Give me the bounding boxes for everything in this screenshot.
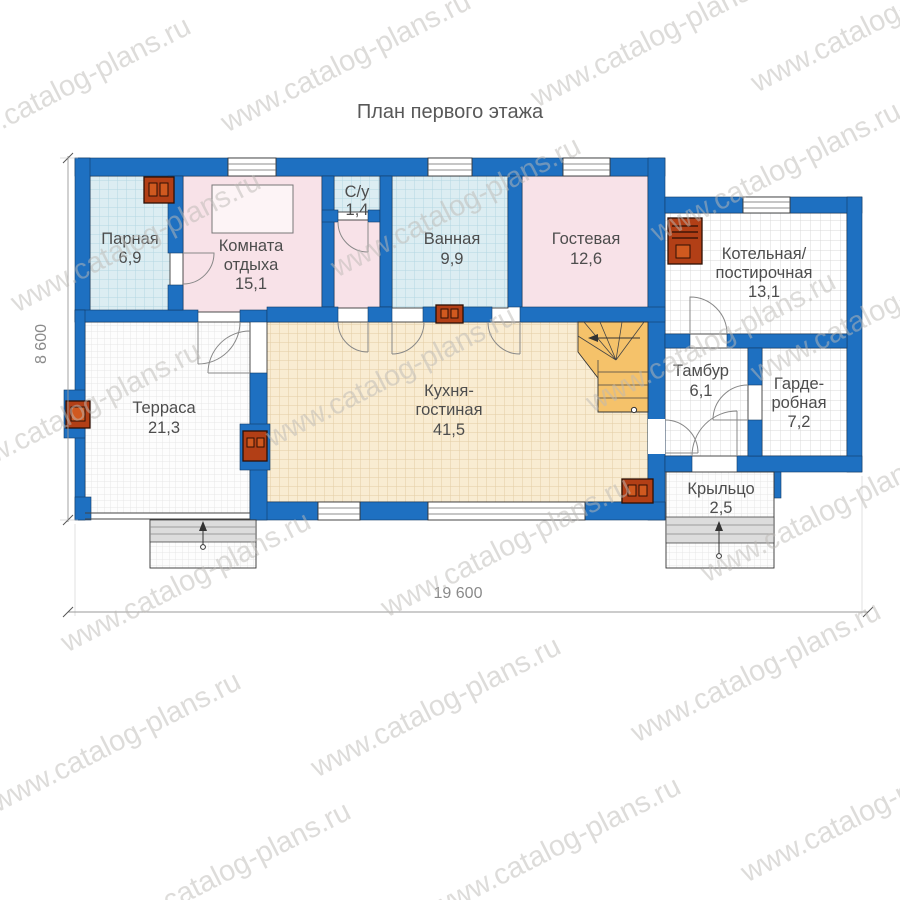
radiator-icon [144,177,174,203]
room-label: Крыльцо [687,480,754,498]
watermark-text: www.catalog-plans.ru [0,10,196,164]
radiator-icon [243,431,267,461]
radiator-icon [436,305,463,323]
watermark-text: www.catalog-plans.ru [625,595,886,749]
page-title: План первого этажа [357,101,544,123]
terrace-open-edge [85,513,250,519]
watermark-text: www.catalog-plans.ru [95,795,356,900]
watermark-text: www.catalog-plans.ru [745,0,900,99]
stairs-start-marker [631,407,636,412]
watermark-text: www.catalog-plans.ru [425,770,686,900]
room-label: С/у [345,183,371,201]
room-area: 1,4 [346,201,369,219]
room-area: 6,1 [690,382,713,400]
room-label: гостиная [415,401,482,419]
watermark-text: www.catalog-plans.ru [305,630,566,784]
room-label: Гостевая [552,230,621,248]
room-label: робная [771,394,826,412]
dimension-height-label: 8 600 [33,324,50,364]
room-area: 9,9 [441,250,464,268]
room-label: отдыха [224,256,279,274]
door-gap [648,419,665,454]
floor-plan-page: Парная 6,9 Комната отдыха 15,1 С/у 1,4 В… [0,0,900,900]
room-label: Комната [219,237,284,255]
room-area: 15,1 [235,275,267,293]
room-area: 12,6 [570,250,602,268]
room-label: Терраса [132,399,196,417]
room-label: Кухня- [424,382,474,400]
watermark-text: www.catalog-plans.ru [525,0,786,114]
room-area: 21,3 [148,419,180,437]
watermark-text: www.catalog-plans.ru [735,735,900,889]
room-area: 7,2 [788,413,811,431]
window-icon [428,158,472,176]
room-area: 41,5 [433,421,465,439]
room-area: 2,5 [710,499,733,517]
watermark-text: www.catalog-plans.ru [0,665,246,819]
room-label: Котельная/ [722,245,807,263]
window-icon [318,502,360,520]
floor-plan-canvas: Парная 6,9 Комната отдыха 15,1 С/у 1,4 В… [0,0,900,900]
